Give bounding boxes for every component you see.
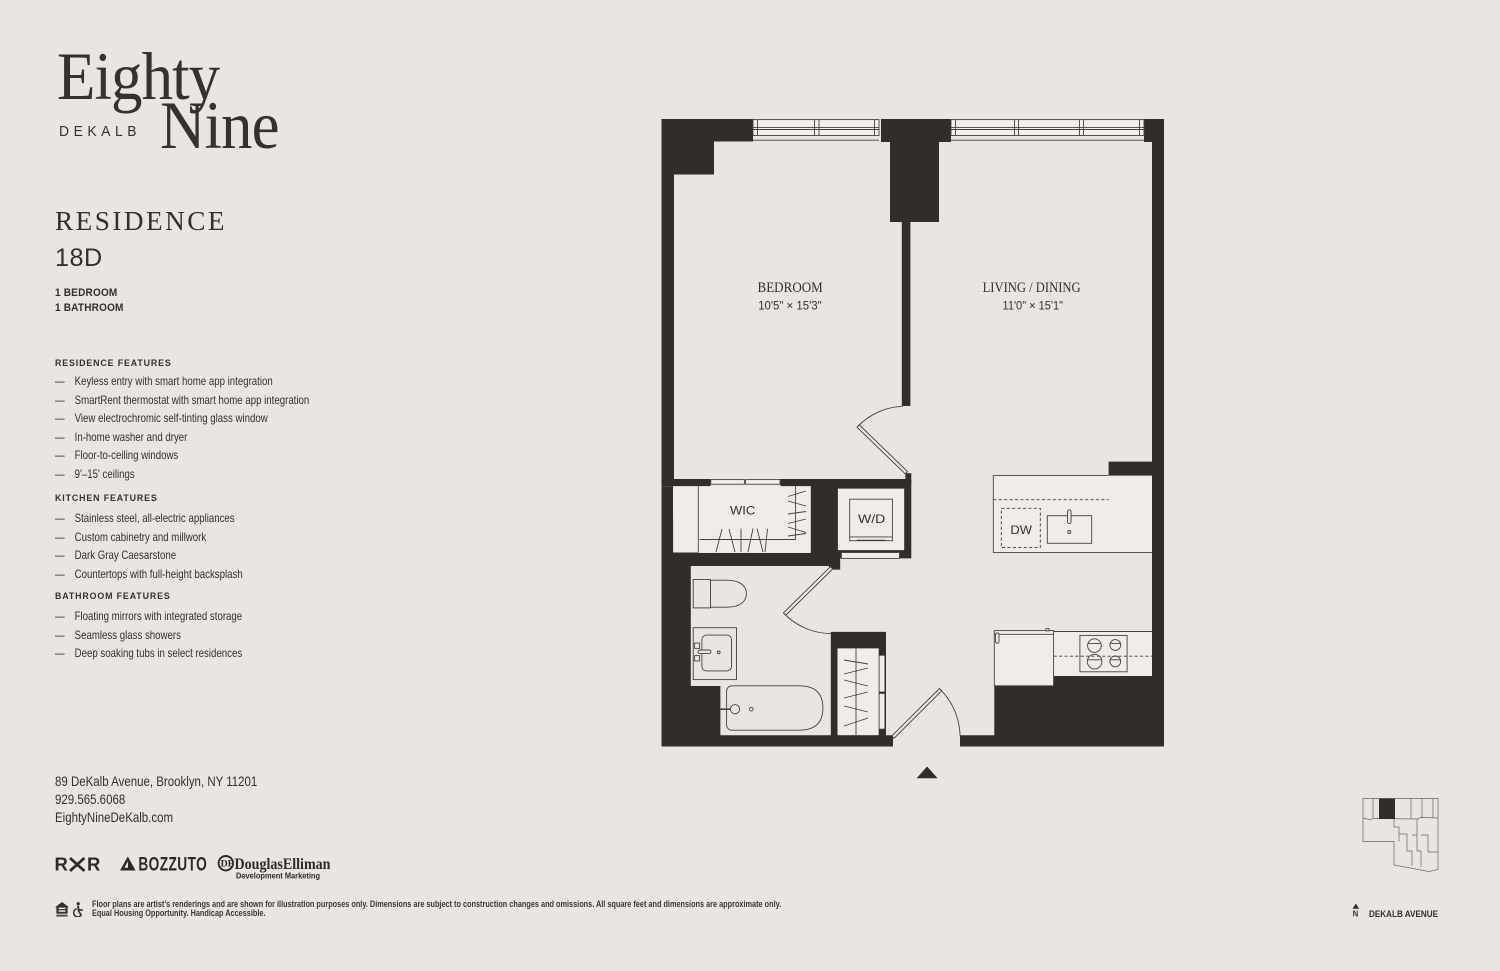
svg-text:R: R [87,856,100,872]
svg-text:BOZZUTO: BOZZUTO [138,855,207,873]
svg-text:LIVING / DINING: LIVING / DINING [983,280,1081,296]
svg-text:DW: DW [1010,523,1033,537]
svg-text:R: R [55,856,68,872]
svg-text:BEDROOM: BEDROOM [758,280,824,296]
svg-text:W/D: W/D [858,512,886,526]
svg-text:DEKALB AVENUE: DEKALB AVENUE [1369,908,1438,918]
svg-text:N: N [1353,909,1359,918]
svg-text:DE: DE [221,859,235,870]
svg-text:10'5" × 15'3": 10'5" × 15'3" [758,299,822,313]
svg-text:Development Marketing: Development Marketing [236,871,320,880]
svg-text:11'0" × 15'1": 11'0" × 15'1" [1003,299,1064,313]
svg-text:WIC: WIC [730,504,755,518]
